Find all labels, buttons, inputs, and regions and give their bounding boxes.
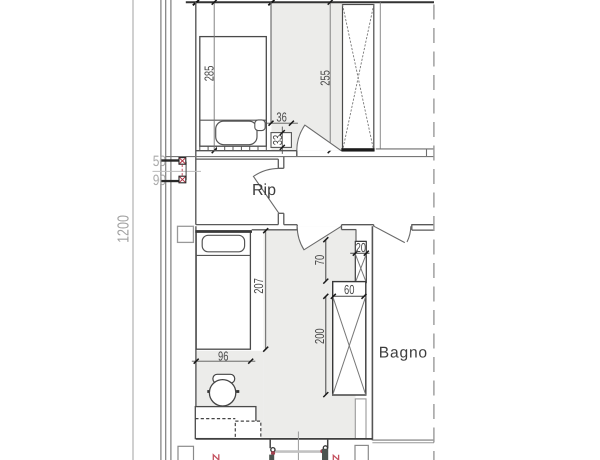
svg-text:255: 255	[318, 70, 333, 86]
svg-text:1200: 1200	[116, 215, 133, 243]
svg-text:207: 207	[251, 278, 266, 294]
svg-text:96: 96	[218, 349, 228, 364]
svg-text:60: 60	[344, 282, 354, 297]
svg-text:70: 70	[312, 255, 327, 265]
svg-text:285: 285	[201, 66, 216, 82]
svg-text:36: 36	[276, 109, 286, 124]
svg-text:Rip: Rip	[252, 182, 276, 199]
svg-text:Bagno: Bagno	[379, 344, 428, 361]
svg-text:200: 200	[312, 328, 327, 344]
svg-text:33: 33	[270, 135, 285, 145]
svg-text:20: 20	[356, 240, 366, 255]
